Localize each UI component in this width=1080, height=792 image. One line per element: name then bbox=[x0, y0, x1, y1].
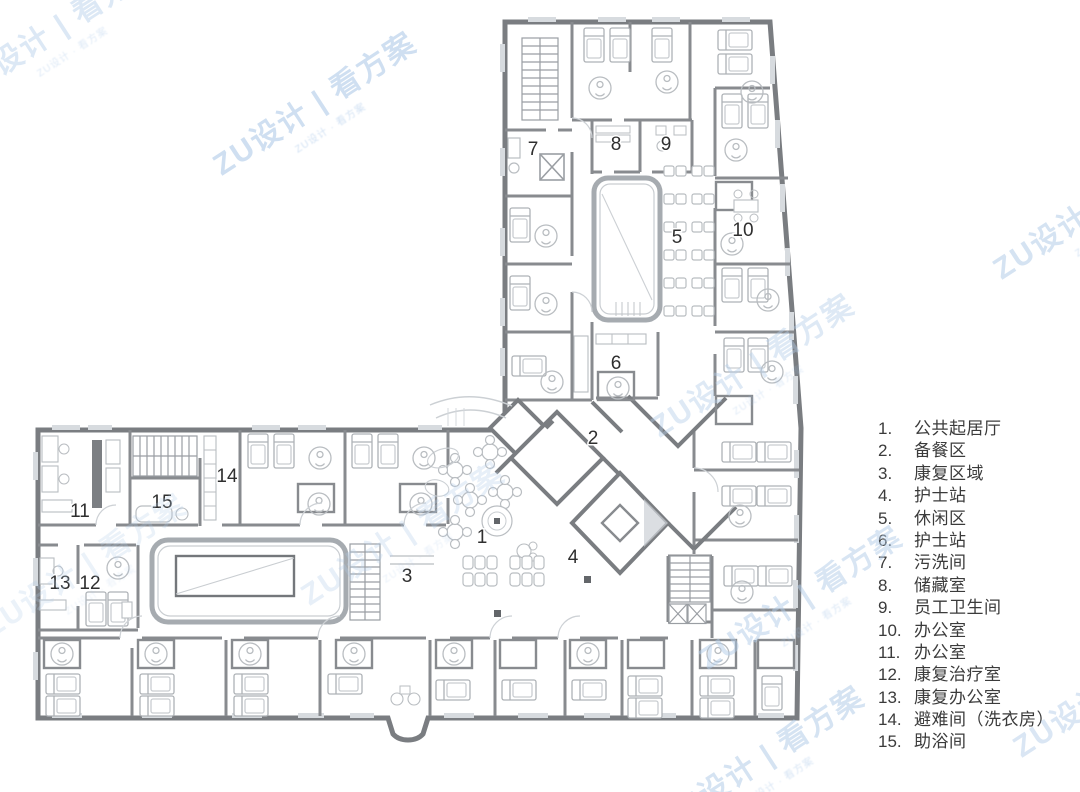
legend-item-label: 康复治疗室 bbox=[914, 664, 1002, 686]
legend-item: 3.康复区域 bbox=[878, 463, 1054, 485]
plan-marker-6: 6 bbox=[611, 353, 622, 374]
legend-item-label: 备餐区 bbox=[914, 440, 967, 462]
legend-item: 12.康复治疗室 bbox=[878, 664, 1054, 686]
legend-item-number: 12. bbox=[878, 664, 914, 686]
plan-marker-9: 9 bbox=[661, 134, 672, 155]
legend-item-label: 康复办公室 bbox=[914, 687, 1002, 709]
legend-item: 7.污洗间 bbox=[878, 552, 1054, 574]
legend-item-label: 护士站 bbox=[914, 485, 967, 507]
plan-marker-8: 8 bbox=[611, 134, 622, 155]
floor-plan-page: 1 2 3 4 5 6 7 8 9 10 11 12 13 14 15 1.公共… bbox=[0, 0, 1080, 792]
legend-item: 6.护士站 bbox=[878, 530, 1054, 552]
plan-marker-14: 14 bbox=[216, 466, 238, 487]
plan-marker-2: 2 bbox=[588, 428, 599, 449]
legend-item: 13.康复办公室 bbox=[878, 687, 1054, 709]
legend-item-number: 15. bbox=[878, 731, 914, 753]
legend-item: 5.休闲区 bbox=[878, 508, 1054, 530]
legend-item-label: 康复区域 bbox=[914, 463, 984, 485]
plan-marker-1: 1 bbox=[477, 527, 488, 548]
atrium-bottom bbox=[152, 540, 346, 622]
legend-item-label: 避难间（洗衣房） bbox=[914, 709, 1054, 731]
legend-item: 2.备餐区 bbox=[878, 440, 1054, 462]
legend-item-number: 10. bbox=[878, 620, 914, 642]
legend-item-number: 6. bbox=[878, 530, 914, 552]
elevator-icon bbox=[688, 604, 706, 624]
legend-item-label: 公共起居厅 bbox=[914, 418, 1002, 440]
plan-marker-4: 4 bbox=[568, 547, 579, 568]
plan-marker-7: 7 bbox=[528, 139, 539, 160]
legend-item-number: 8. bbox=[878, 575, 914, 597]
legend-item: 11.办公室 bbox=[878, 642, 1054, 664]
legend-item-number: 4. bbox=[878, 485, 914, 507]
plan-marker-5: 5 bbox=[672, 227, 683, 248]
legend-item: 1.公共起居厅 bbox=[878, 418, 1054, 440]
plan-marker-3: 3 bbox=[402, 566, 413, 587]
legend-item-number: 1. bbox=[878, 418, 914, 440]
legend-item-label: 办公室 bbox=[914, 620, 967, 642]
atrium-top bbox=[594, 178, 660, 320]
legend-item-label: 储藏室 bbox=[914, 575, 967, 597]
legend-item: 15.助浴间 bbox=[878, 731, 1054, 753]
plan-marker-15: 15 bbox=[151, 492, 172, 513]
legend-item-number: 14. bbox=[878, 709, 914, 731]
legend-item-label: 助浴间 bbox=[914, 731, 967, 753]
legend-item-label: 污洗间 bbox=[914, 552, 967, 574]
legend-item-label: 护士站 bbox=[914, 530, 967, 552]
legend-item: 10.办公室 bbox=[878, 620, 1054, 642]
legend-item: 9.员工卫生间 bbox=[878, 597, 1054, 619]
plan-marker-13: 13 bbox=[49, 573, 70, 594]
legend-item-label: 办公室 bbox=[914, 642, 967, 664]
plan-marker-12: 12 bbox=[79, 573, 100, 594]
plan-marker-10: 10 bbox=[732, 220, 753, 241]
legend-item: 4.护士站 bbox=[878, 485, 1054, 507]
elevator-icon bbox=[540, 154, 564, 180]
legend-item-number: 2. bbox=[878, 440, 914, 462]
legend-item-number: 5. bbox=[878, 508, 914, 530]
building-outline bbox=[38, 22, 801, 740]
plan-marker-11: 11 bbox=[70, 501, 90, 522]
legend-item-label: 员工卫生间 bbox=[914, 597, 1002, 619]
legend-item-number: 7. bbox=[878, 552, 914, 574]
legend-item: 14.避难间（洗衣房） bbox=[878, 709, 1054, 731]
elevator-icon bbox=[669, 604, 687, 624]
legend-item-number: 11. bbox=[878, 642, 914, 664]
legend-item-number: 13. bbox=[878, 687, 914, 709]
legend-item-number: 9. bbox=[878, 597, 914, 619]
legend-item-label: 休闲区 bbox=[914, 508, 967, 530]
legend-item-number: 3. bbox=[878, 463, 914, 485]
legend-item: 8.储藏室 bbox=[878, 575, 1054, 597]
legend: 1.公共起居厅 2.备餐区 3.康复区域 4.护士站 5.休闲区 6.护士站 7… bbox=[878, 418, 1054, 754]
